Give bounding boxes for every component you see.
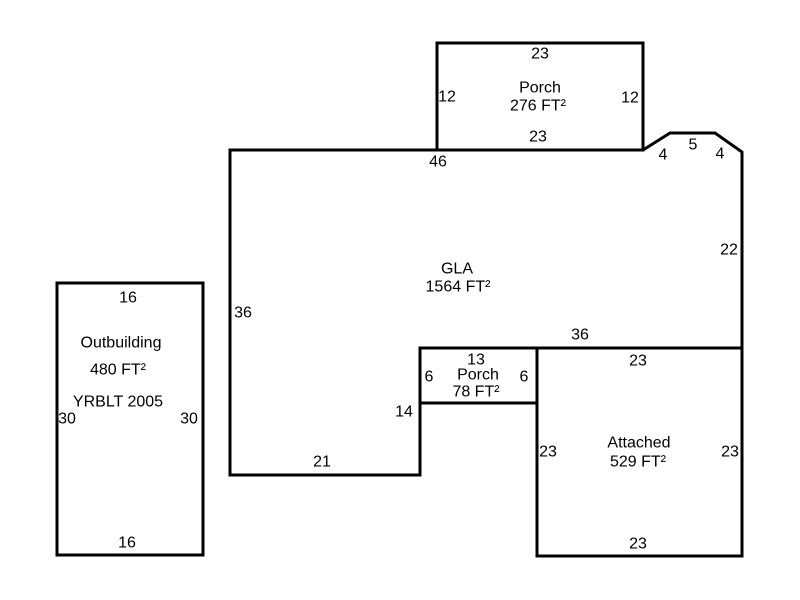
porch276-dim-left: 12 <box>438 89 456 106</box>
attached-title: Attached <box>607 435 670 452</box>
porch78-dim-right: 6 <box>520 369 529 386</box>
gla-dim-bottom-right: 36 <box>571 327 589 344</box>
porch276-dim-bottom: 23 <box>529 129 547 146</box>
gla-dim-bay-left: 4 <box>659 147 668 164</box>
attached-region <box>537 348 742 556</box>
outbuilding-dim-bottom: 16 <box>118 535 136 552</box>
gla-dim-left: 36 <box>234 305 252 322</box>
attached-area: 529 FT² <box>610 454 667 471</box>
gla-dim-step: 14 <box>395 404 413 421</box>
porch276-area: 276 FT² <box>510 98 567 115</box>
gla-dim-bay-mid: 5 <box>689 137 698 154</box>
porch78-title: Porch <box>457 367 499 384</box>
porch78-area: 78 FT² <box>452 384 500 401</box>
outbuilding-title: Outbuilding <box>81 335 162 352</box>
outbuilding-area: 480 FT² <box>90 362 147 379</box>
attached-dim-top: 23 <box>629 353 647 370</box>
porch276-dim-right: 12 <box>621 90 639 107</box>
porch78-dim-left: 6 <box>425 369 434 386</box>
gla-dim-right: 22 <box>720 242 738 259</box>
gla-dim-bay-right: 4 <box>716 146 725 163</box>
outbuilding-dim-right: 30 <box>180 411 198 428</box>
gla-dim-top: 46 <box>429 154 447 171</box>
outbuilding-dim-left: 30 <box>58 411 76 428</box>
porch276-dim-top: 23 <box>531 46 549 63</box>
gla-title: GLA <box>441 261 473 278</box>
gla-area: 1564 FT² <box>426 279 492 296</box>
outbuilding-yrblt: YRBLT 2005 <box>73 394 163 411</box>
floor-plan-sketch-canvas: 2312Porch276 FT²1223464542236GLA1564 FT²… <box>0 0 800 600</box>
gla-dim-bottom-left: 21 <box>313 454 331 471</box>
outbuilding-dim-top: 16 <box>119 290 137 307</box>
attached-dim-left: 23 <box>539 444 557 461</box>
property-sketch-page: 2312Porch276 FT²1223464542236GLA1564 FT²… <box>0 0 800 600</box>
porch276-title: Porch <box>519 80 561 97</box>
attached-dim-bottom: 23 <box>629 536 647 553</box>
attached-dim-right: 23 <box>721 444 739 461</box>
